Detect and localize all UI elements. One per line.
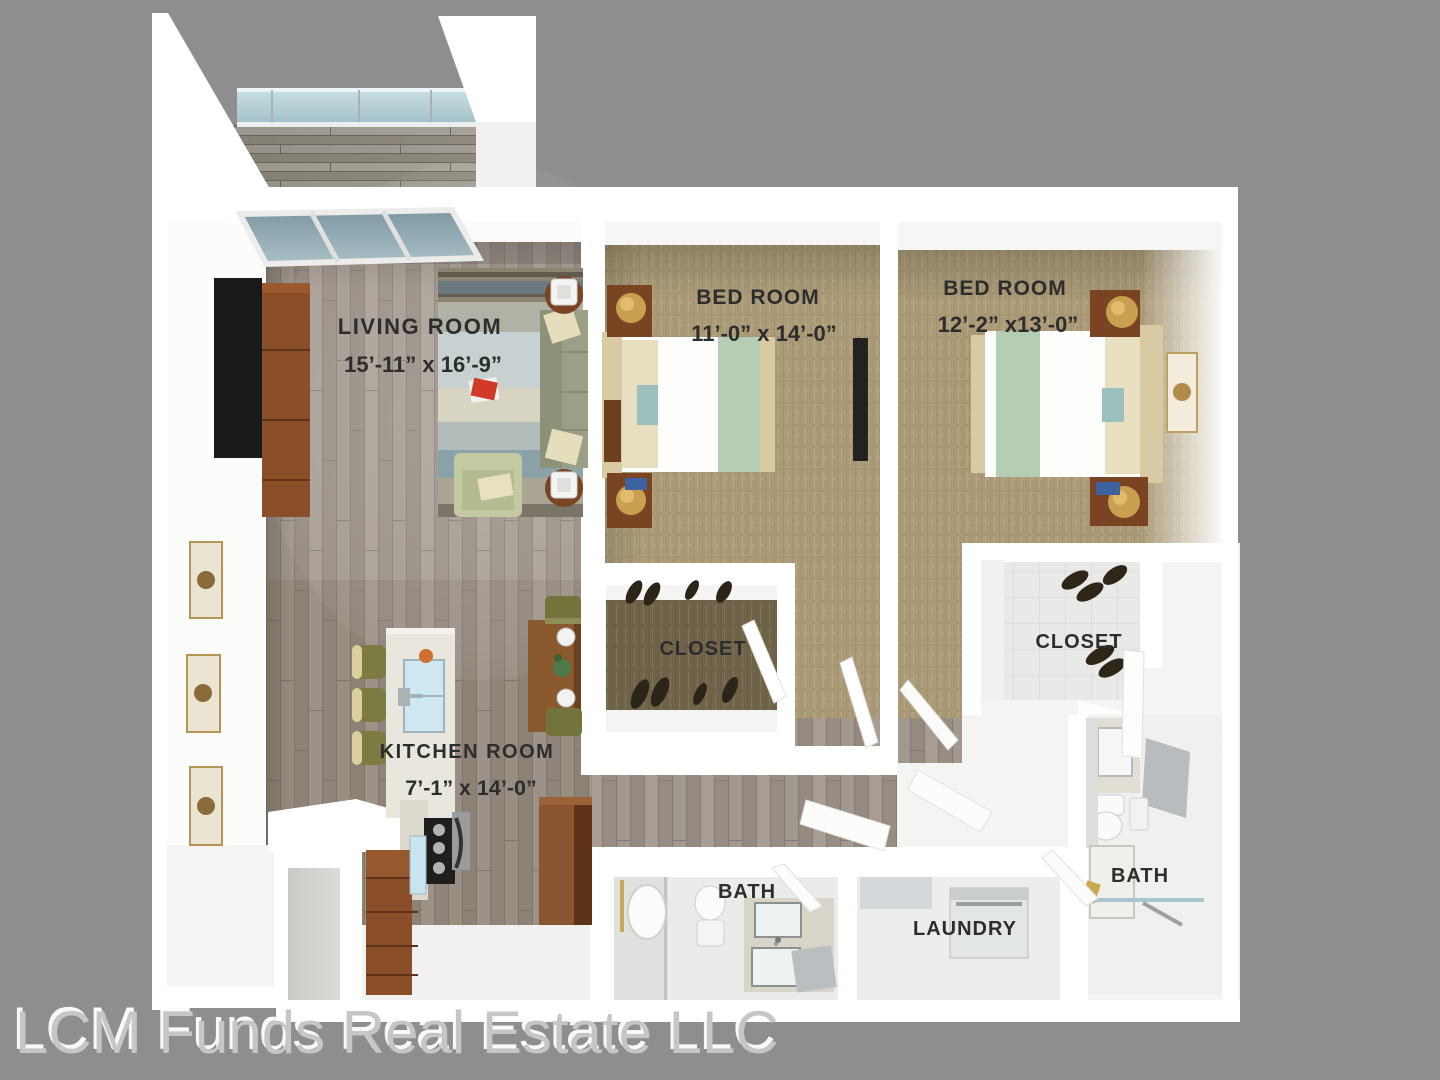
svg-text:LAUNDRY: LAUNDRY: [913, 918, 1017, 940]
svg-text:BATH: BATH: [1111, 865, 1169, 887]
svg-text:BED ROOM: BED ROOM: [696, 286, 820, 309]
svg-text:KITCHEN ROOM: KITCHEN ROOM: [380, 741, 555, 763]
svg-text:12’-2” x13’-0”: 12’-2” x13’-0”: [938, 312, 1079, 337]
svg-text:CLOSET: CLOSET: [1035, 631, 1122, 653]
svg-text:CLOSET: CLOSET: [659, 638, 746, 660]
svg-text:BED ROOM: BED ROOM: [943, 277, 1067, 300]
svg-text:15’-11” x 16’-9”: 15’-11” x 16’-9”: [344, 352, 502, 377]
svg-text:LCM Funds Real Estate LLC: LCM Funds Real Estate LLC: [15, 999, 779, 1066]
svg-text:7’-1” x 14’-0”: 7’-1” x 14’-0”: [405, 776, 536, 800]
svg-text:LIVING ROOM: LIVING ROOM: [338, 314, 502, 339]
svg-text:11’-0” x 14’-0”: 11’-0” x 14’-0”: [691, 321, 837, 346]
svg-text:BATH: BATH: [718, 881, 776, 903]
